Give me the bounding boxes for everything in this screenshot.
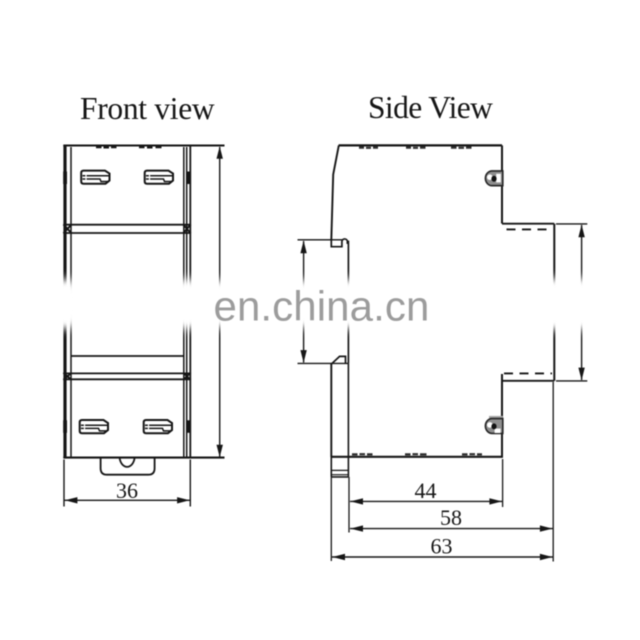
svg-text:Side View: Side View bbox=[368, 90, 493, 125]
svg-text:Front view: Front view bbox=[80, 91, 215, 126]
svg-text:36: 36 bbox=[116, 478, 138, 503]
svg-text:58: 58 bbox=[440, 505, 462, 530]
svg-text:en.china.cn: en.china.cn bbox=[214, 283, 430, 330]
svg-text:63: 63 bbox=[431, 534, 453, 559]
svg-text:44: 44 bbox=[415, 478, 437, 503]
